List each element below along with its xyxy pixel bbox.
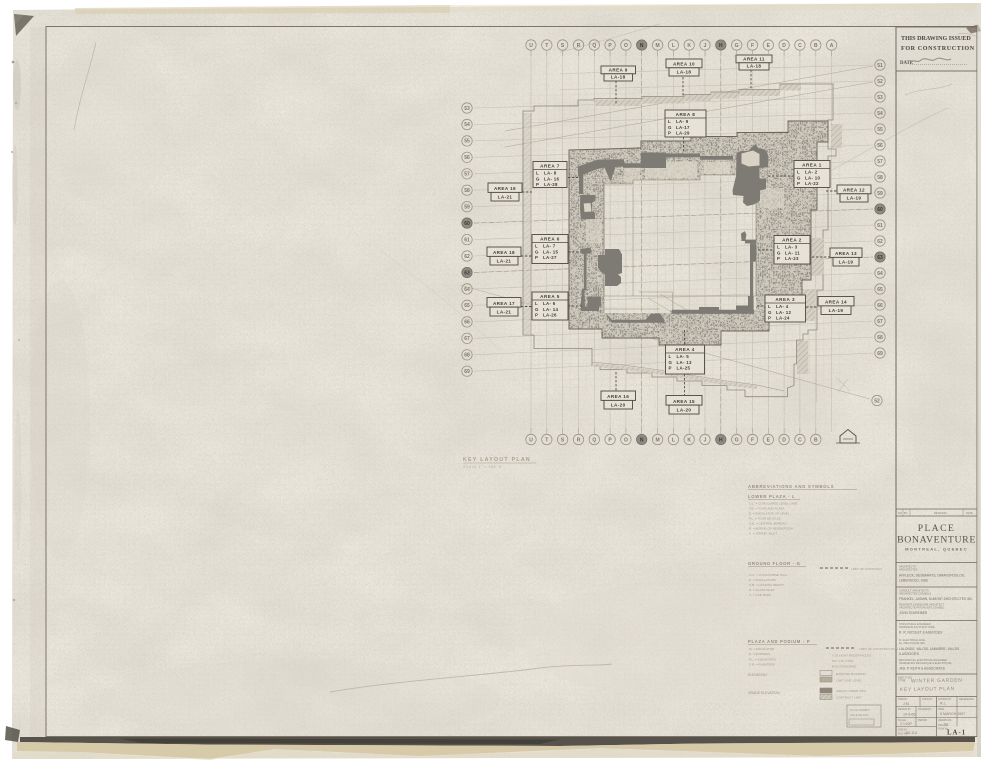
svg-text:CHKD BY: CHKD BY: [922, 698, 933, 701]
svg-text:LA-18: LA-18: [677, 70, 692, 75]
svg-text:62: 62: [464, 254, 470, 260]
svg-text:LA- 7: LA- 7: [543, 244, 556, 249]
svg-text:63: 63: [464, 270, 470, 276]
svg-text:L.C. = CONCOURSE LEVEL LIMIT: L.C. = CONCOURSE LEVEL LIMIT: [749, 502, 798, 506]
svg-text:U: U: [529, 437, 533, 443]
svg-text:C: C: [798, 43, 802, 49]
svg-text:6 MARCH 1967: 6 MARCH 1967: [940, 712, 965, 716]
svg-text:67: 67: [877, 319, 883, 325]
svg-text:L: L: [672, 43, 675, 49]
svg-text:PERIOD: PERIOD: [918, 719, 927, 722]
svg-text:LA-1: LA-1: [947, 730, 966, 737]
svg-text:BONAVENTURE: BONAVENTURE: [897, 535, 976, 546]
svg-text:C.B. = CENTRAL BUREAU: C.B. = CENTRAL BUREAU: [749, 522, 787, 526]
svg-text:B: B: [814, 43, 818, 49]
svg-text:+ 20 LIGHT RECEPTACLES: + 20 LIGHT RECEPTACLES: [832, 654, 871, 658]
svg-text:G: G: [668, 125, 672, 130]
svg-text:58: 58: [464, 188, 470, 194]
svg-text:LA- 10: LA- 10: [805, 175, 820, 180]
svg-text:N: N: [640, 437, 644, 443]
svg-text:THIS DRAWING ISSUED: THIS DRAWING ISSUED: [901, 36, 971, 42]
svg-text:LOWER PLAZA - L: LOWER PLAZA - L: [748, 494, 795, 499]
svg-text:NO: NO: [898, 511, 902, 515]
svg-text:INGENIEUR EN STRUCTURE: INGENIEUR EN STRUCTURE: [899, 625, 935, 629]
svg-text:X. = CAR PARK: X. = CAR PARK: [749, 593, 772, 597]
svg-text:R. R. NICOLET & ASSOCIES: R. R. NICOLET & ASSOCIES: [899, 631, 943, 635]
svg-text:LA-20: LA-20: [677, 408, 692, 413]
svg-text:O: O: [624, 43, 628, 49]
svg-text:E. = EXPRESS: E. = EXPRESS: [749, 652, 770, 656]
svg-text:AREA 17: AREA 17: [493, 301, 515, 306]
svg-text:AREA 4: AREA 4: [675, 347, 695, 352]
svg-text:K: K: [687, 43, 691, 49]
svg-text:55: 55: [877, 127, 883, 133]
svg-text:MONTREAL, QUEBEC: MONTREAL, QUEBEC: [905, 547, 968, 552]
svg-text:LA- 9: LA- 9: [676, 119, 689, 124]
svg-text:LA-18: LA-18: [747, 64, 762, 69]
svg-text:M: M: [656, 437, 660, 443]
svg-text:M. = ESCALATOR: M. = ESCALATOR: [749, 647, 775, 651]
svg-text:FRANKEL, JASMIN, DUMONT ARCHIT: FRANKEL, JASMIN, DUMONT ARCHITECTES INC: [899, 597, 973, 601]
svg-text:N: N: [640, 43, 644, 49]
svg-text:61: 61: [877, 223, 883, 229]
svg-text:P: P: [797, 181, 800, 186]
svg-text:65: 65: [877, 287, 883, 293]
svg-text:EL. MECANIQUE ING.: EL. MECANIQUE ING.: [899, 641, 926, 645]
svg-text:65: 65: [464, 303, 470, 309]
svg-text:T.B. = TOUR AND PLAZA: T.B. = TOUR AND PLAZA: [749, 507, 785, 511]
svg-text:51: 51: [877, 63, 883, 69]
svg-text:AREA 2: AREA 2: [782, 237, 802, 242]
svg-text:L: L: [768, 304, 771, 309]
svg-text:LA-21: LA-21: [497, 310, 512, 315]
svg-text:LA-26: LA-26: [543, 312, 557, 317]
svg-text:61: 61: [464, 237, 470, 243]
svg-text:LA- 4: LA- 4: [776, 304, 789, 309]
svg-text:LA-21: LA-21: [497, 259, 512, 264]
svg-text:GRADE ELEVATION: GRADE ELEVATION: [748, 691, 780, 695]
svg-text:L: L: [668, 119, 671, 124]
svg-text:67: 67: [464, 336, 470, 342]
svg-text:68: 68: [464, 353, 470, 359]
svg-text:G: G: [797, 175, 801, 180]
svg-text:LIMIT OF CONTRACT: LIMIT OF CONTRACT: [851, 567, 882, 571]
svg-text:AREA 15: AREA 15: [673, 399, 695, 404]
svg-text:P: P: [535, 255, 538, 260]
svg-text:ABBREVIATIONS AND SYMBOLS: ABBREVIATIONS AND SYMBOLS: [748, 484, 834, 489]
svg-text:LA-23: LA-23: [785, 256, 799, 261]
svg-text:M: M: [656, 43, 660, 49]
svg-text:LA-29: LA-29: [676, 130, 690, 135]
svg-text:C.B. = PLANTERS: C.B. = PLANTERS: [749, 663, 775, 667]
svg-text:SCALE 1" = 100'-0": SCALE 1" = 100'-0": [463, 465, 504, 469]
svg-text:BUS STANDARD: BUS STANDARD: [832, 665, 857, 669]
svg-text:LALONDE, VALOIS, LAMARRE, VALO: LALONDE, VALOIS, LAMARRE, VALOIS: [899, 647, 960, 651]
svg-text:AREA 1: AREA 1: [802, 162, 822, 167]
svg-text:BY: BY: [904, 511, 908, 515]
svg-text:66: 66: [877, 303, 883, 309]
svg-text:TITRE: TITRE: [898, 679, 906, 683]
svg-text:ELEVATION: ELEVATION: [748, 673, 767, 677]
svg-text:L: L: [777, 245, 780, 250]
svg-text:63: 63: [877, 255, 883, 261]
svg-text:69: 69: [877, 351, 883, 357]
svg-text:64: 64: [877, 271, 883, 277]
svg-text:C: C: [798, 437, 802, 443]
svg-text:CONTRACT LIMIT: CONTRACT LIMIT: [836, 696, 862, 700]
svg-text:REFERENCE: REFERENCE: [959, 698, 974, 701]
svg-text:AREA 10: AREA 10: [673, 62, 695, 67]
svg-text:60: 60: [464, 221, 470, 227]
svg-text:LA-19: LA-19: [829, 308, 844, 313]
svg-text:53: 53: [877, 95, 883, 101]
svg-text:LA- 13: LA- 13: [677, 360, 692, 365]
svg-text:INGENIEURS MECANIQUE & ELECTRI: INGENIEURS MECANIQUE & ELECTRIQUE: [899, 661, 952, 665]
svg-text:AREA 13: AREA 13: [835, 251, 857, 256]
svg-text:LA- 16: LA- 16: [544, 176, 559, 181]
svg-text:R.L.: R.L.: [940, 702, 947, 706]
svg-text:B: B: [814, 437, 818, 443]
svg-text:R. = BORNE OF RECREATION: R. = BORNE OF RECREATION: [749, 527, 793, 531]
svg-text:68: 68: [877, 335, 883, 341]
svg-text:P.L. = ELEVATORS: P.L. = ELEVATORS: [749, 657, 776, 661]
svg-text:LA- 5: LA- 5: [677, 354, 690, 359]
svg-text:AREA 7: AREA 7: [540, 163, 560, 168]
svg-text:D: D: [782, 437, 786, 443]
svg-text:P: P: [777, 256, 780, 261]
svg-text:O: O: [624, 437, 628, 443]
svg-text:REVISION: REVISION: [934, 511, 947, 515]
svg-text:G.C. = CONCOURSE HALL: G.C. = CONCOURSE HALL: [749, 573, 788, 577]
svg-text:J.M.: J.M.: [903, 702, 910, 706]
svg-text:G: G: [535, 307, 539, 312]
svg-text:L: L: [536, 171, 539, 176]
svg-text:DATE: DATE: [966, 511, 973, 515]
svg-text:LA- 3: LA- 3: [785, 245, 798, 250]
svg-text:R. = PLAZA INLET: R. = PLAZA INLET: [749, 588, 775, 592]
svg-text:LIMIT LINE LEVEL: LIMIT LINE LEVEL: [836, 679, 862, 683]
svg-text:P: P: [535, 312, 538, 317]
svg-text:LA-18: LA-18: [611, 75, 626, 80]
svg-text:F: F: [751, 43, 754, 49]
svg-text:56: 56: [464, 155, 470, 161]
svg-text:P: P: [668, 130, 671, 135]
svg-text:54: 54: [464, 122, 470, 128]
svg-text:LA- 6: LA- 6: [543, 301, 556, 306]
svg-text:Q: Q: [592, 43, 596, 49]
svg-text:X. = STREET INLET: X. = STREET INLET: [749, 532, 777, 536]
svg-text:KEY LAYOUT PLAN: KEY LAYOUT PLAN: [463, 457, 531, 463]
svg-text:LA-19: LA-19: [847, 196, 862, 201]
svg-text:G: G: [735, 43, 739, 49]
svg-text:DATE: DATE: [938, 708, 945, 711]
svg-text:D: D: [782, 43, 786, 49]
svg-text:LA- 14: LA- 14: [543, 307, 558, 312]
svg-text:P.L. = TOUR DE VILLE: P.L. = TOUR DE VILLE: [749, 517, 781, 521]
svg-text:AREA 19: AREA 19: [494, 186, 516, 191]
svg-text:59: 59: [877, 191, 883, 197]
svg-text:P: P: [768, 315, 771, 320]
svg-text:1"=100': 1"=100': [900, 722, 912, 726]
svg-text:GROUND FLOOR - G: GROUND FLOOR - G: [748, 561, 801, 566]
svg-text:DESIGN BY: DESIGN BY: [898, 708, 911, 711]
svg-text:JOHN SCHREIBER: JOHN SCHREIBER: [899, 611, 928, 615]
svg-text:WINTER GARDEN: WINTER GARDEN: [911, 678, 963, 685]
svg-text:AREA 18: AREA 18: [493, 250, 515, 255]
svg-text:J: J: [704, 43, 707, 49]
svg-text:59: 59: [464, 205, 470, 211]
svg-text:LIMIT OF CONSTRUCTION: LIMIT OF CONSTRUCTION: [859, 647, 898, 651]
svg-text:& ASSOCIES: & ASSOCIES: [899, 652, 920, 656]
svg-text:LA-21: LA-21: [498, 195, 513, 200]
svg-text:52: 52: [877, 79, 883, 85]
svg-text:K: K: [687, 437, 691, 443]
svg-text:LA- 2: LA- 2: [805, 170, 818, 175]
svg-text:AREA 6: AREA 6: [540, 236, 560, 241]
svg-text:57: 57: [877, 159, 883, 165]
svg-text:AREA 11: AREA 11: [743, 57, 765, 62]
svg-text:No DU PERMIS: No DU PERMIS: [850, 708, 870, 712]
svg-text:L: L: [535, 301, 538, 306]
svg-text:L: L: [797, 170, 800, 175]
svg-text:LA-25: LA-25: [677, 365, 691, 370]
svg-text:56: 56: [877, 143, 883, 149]
svg-text:A: A: [830, 43, 834, 49]
svg-text:AREA 8: AREA 8: [676, 112, 696, 117]
svg-text:C.B. = LOADING BERTH: C.B. = LOADING BERTH: [749, 583, 784, 587]
svg-text:53: 53: [464, 106, 470, 112]
svg-text:52: 52: [874, 398, 880, 404]
svg-text:G: G: [735, 437, 739, 443]
svg-text:21: 21: [944, 723, 948, 727]
svg-text:L: L: [669, 354, 672, 359]
svg-text:LA-24: LA-24: [776, 315, 790, 320]
svg-text:ARCHITECTES: ARCHITECTES: [899, 568, 918, 572]
svg-text:E. = ESCALATORS: E. = ESCALATORS: [749, 578, 776, 582]
svg-text:LA-28: LA-28: [544, 182, 558, 187]
svg-text:G: G: [669, 360, 673, 365]
svg-text:FOR CONSTRUCTION: FOR CONSTRUCTION: [901, 46, 975, 52]
svg-text:64: 64: [464, 287, 470, 293]
svg-text:KEY LAYOUT PLAN: KEY LAYOUT PLAN: [900, 686, 955, 693]
svg-text:H: H: [719, 437, 723, 443]
svg-text:LA-22: LA-22: [805, 181, 819, 186]
svg-text:G: G: [535, 249, 539, 254]
svg-text:AREA 12: AREA 12: [843, 188, 865, 193]
svg-text:EXISTING BUILDING: EXISTING BUILDING: [836, 672, 867, 676]
svg-text:LA-20: LA-20: [611, 403, 626, 408]
svg-text:ARCHITECTE PAYSAGISTE CONSEIL: ARCHITECTE PAYSAGISTE CONSEIL: [899, 606, 945, 610]
svg-text:LEBENSOLD, SISE: LEBENSOLD, SISE: [899, 579, 929, 583]
svg-text:P: P: [536, 182, 539, 187]
svg-text:65-114: 65-114: [906, 731, 917, 735]
svg-text:U: U: [529, 43, 533, 49]
svg-text:PLAZA AND PODIUM - P: PLAZA AND PODIUM - P: [748, 639, 810, 644]
svg-text:J: J: [704, 437, 707, 443]
svg-text:55: 55: [464, 139, 470, 145]
svg-text:AREA 9: AREA 9: [609, 68, 628, 73]
svg-text:DWN BY: DWN BY: [898, 698, 908, 701]
svg-text:LA-27: LA-27: [543, 255, 557, 260]
svg-text:R: R: [577, 437, 581, 443]
svg-text:P: P: [669, 365, 672, 370]
svg-text:66: 66: [464, 320, 470, 326]
svg-text:62: 62: [877, 239, 883, 245]
svg-text:TRACED BY: TRACED BY: [918, 708, 932, 711]
svg-text:PLACE: PLACE: [918, 524, 956, 534]
svg-text:60: 60: [877, 207, 883, 213]
svg-text:NO. C.B. TYPE: NO. C.B. TYPE: [832, 659, 853, 663]
svg-text:58: 58: [877, 175, 883, 181]
svg-text:LA-19: LA-19: [839, 260, 854, 265]
svg-text:54: 54: [877, 111, 883, 117]
svg-text:69: 69: [464, 369, 470, 375]
svg-text:AREA 16: AREA 16: [607, 394, 629, 399]
svg-text:LA- 8: LA- 8: [544, 171, 557, 176]
svg-text:AFFLECK, DESBARATS, DIMAKOPOUL: AFFLECK, DESBARATS, DIMAKOPOULOS,: [899, 574, 965, 578]
svg-text:AREAS UNDER THIS: AREAS UNDER THIS: [836, 689, 866, 693]
svg-text:JAS. P. KEITH & ASSOCIATES: JAS. P. KEITH & ASSOCIATES: [899, 667, 946, 671]
svg-text:LA- 12: LA- 12: [776, 310, 791, 315]
svg-text:G: G: [768, 310, 772, 315]
svg-text:G: G: [777, 250, 781, 255]
svg-text:T: T: [545, 43, 548, 49]
svg-text:19-9-66: 19-9-66: [903, 713, 915, 717]
svg-text:57: 57: [464, 172, 470, 178]
svg-text:L: L: [535, 244, 538, 249]
svg-text:F: F: [751, 437, 754, 443]
svg-text:E. = ESCALATOR UP LEVEL: E. = ESCALATOR UP LEVEL: [749, 512, 790, 516]
svg-text:G: G: [536, 176, 540, 181]
svg-text:AREA 5: AREA 5: [540, 294, 560, 299]
svg-text:T: T: [545, 437, 548, 443]
svg-text:AREA 14: AREA 14: [825, 300, 847, 305]
svg-text:LA-17: LA-17: [676, 125, 690, 130]
svg-text:L: L: [672, 437, 675, 443]
svg-text:AREA 3: AREA 3: [775, 297, 795, 302]
svg-text:Q: Q: [592, 437, 596, 443]
svg-text:H: H: [719, 43, 723, 49]
svg-text:LA- 15: LA- 15: [543, 249, 558, 254]
svg-text:ARCHITECTES CONSEILS: ARCHITECTES CONSEILS: [899, 592, 931, 596]
svg-text:LA- 11: LA- 11: [785, 250, 800, 255]
svg-text:VILLE DE MTL: VILLE DE MTL: [850, 713, 869, 717]
svg-text:R: R: [577, 43, 581, 49]
